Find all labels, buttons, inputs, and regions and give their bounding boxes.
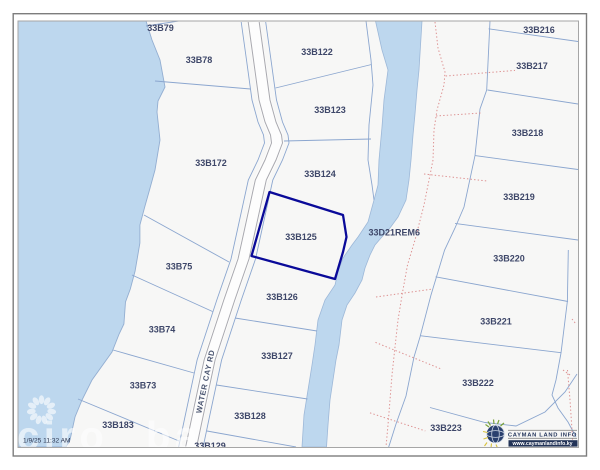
svg-text:33B183: 33B183: [102, 420, 134, 430]
svg-text:33B128: 33B128: [234, 411, 266, 421]
svg-text:33B78: 33B78: [186, 55, 213, 65]
svg-text:33B75: 33B75: [166, 262, 193, 272]
svg-text:33B221: 33B221: [480, 317, 512, 327]
svg-text:33B127: 33B127: [261, 351, 293, 361]
svg-text:33B79: 33B79: [147, 23, 174, 33]
svg-text:www.caymanlandinfo.ky: www.caymanlandinfo.ky: [511, 441, 572, 447]
svg-text:33B125: 33B125: [285, 232, 317, 242]
svg-text:33B222: 33B222: [462, 378, 494, 388]
svg-text:33B123: 33B123: [314, 105, 346, 115]
svg-text:33B223: 33B223: [430, 423, 462, 433]
svg-text:33B122: 33B122: [301, 47, 333, 57]
svg-text:33D21REM6: 33D21REM6: [369, 228, 421, 238]
svg-text:33B74: 33B74: [149, 325, 176, 335]
svg-text:33B124: 33B124: [304, 169, 336, 179]
svg-text:33B216: 33B216: [523, 25, 555, 35]
svg-text:33B126: 33B126: [266, 292, 298, 302]
svg-text:33B73: 33B73: [130, 381, 157, 391]
svg-text:33B218: 33B218: [512, 128, 544, 138]
svg-text:33B219: 33B219: [503, 192, 535, 202]
svg-text:33B172: 33B172: [195, 158, 227, 168]
svg-text:1/9/25 11:32 AM: 1/9/25 11:32 AM: [23, 438, 71, 445]
svg-text:33B220: 33B220: [493, 254, 525, 264]
svg-text:CAYMAN LAND INFO: CAYMAN LAND INFO: [508, 432, 577, 438]
svg-text:33B217: 33B217: [516, 61, 548, 71]
